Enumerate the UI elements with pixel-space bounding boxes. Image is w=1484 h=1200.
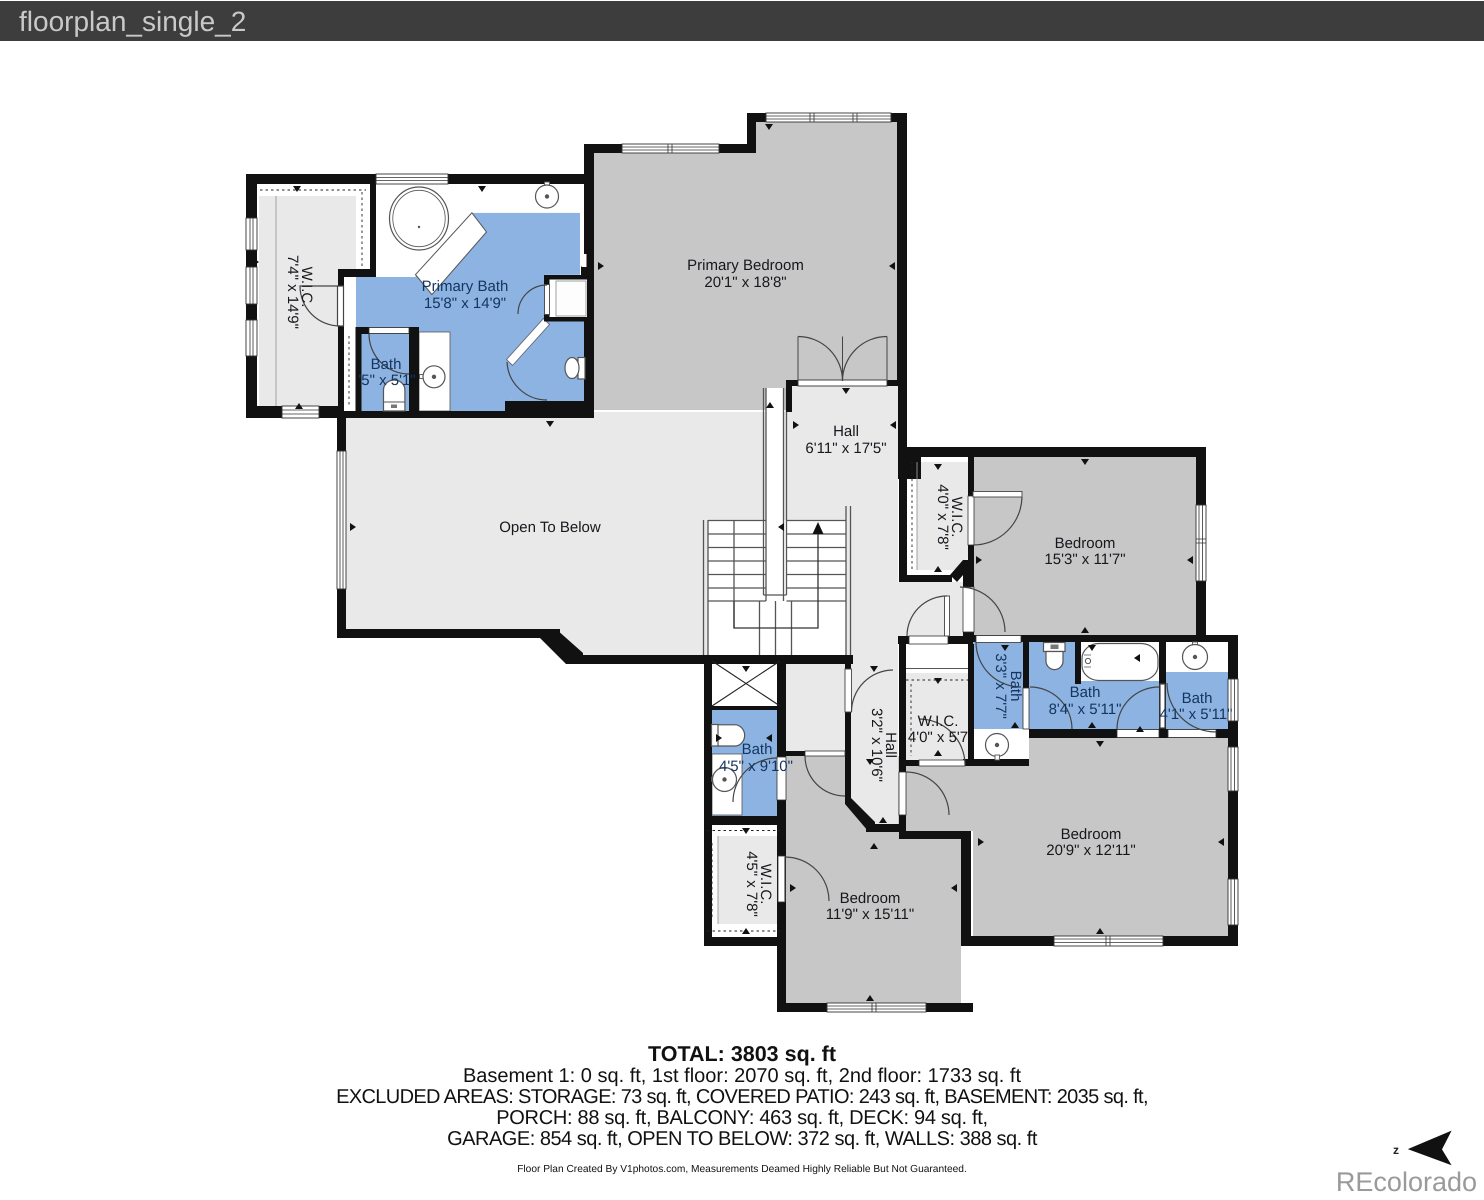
svg-text:REcolorado: REcolorado bbox=[1336, 1167, 1477, 1197]
svg-text:11'9" x 15'11": 11'9" x 15'11" bbox=[826, 906, 914, 923]
svg-text:6'11" x 17'5": 6'11" x 17'5" bbox=[805, 440, 886, 457]
svg-text:'5" x 5'1": '5" x 5'1" bbox=[358, 372, 415, 389]
svg-text:3'2" x 10'6": 3'2" x 10'6" bbox=[868, 708, 885, 782]
svg-text:Hall: Hall bbox=[833, 423, 859, 440]
svg-text:Floor Plan Created By V1photos: Floor Plan Created By V1photos.com, Meas… bbox=[517, 1164, 967, 1175]
svg-text:20'9" x 12'11": 20'9" x 12'11" bbox=[1046, 842, 1136, 859]
svg-text:Primary Bath: Primary Bath bbox=[422, 278, 509, 295]
svg-text:floorplan_single_2: floorplan_single_2 bbox=[19, 6, 246, 37]
svg-text:4'1" x 5'11": 4'1" x 5'11" bbox=[1160, 706, 1233, 723]
svg-text:Bedroom: Bedroom bbox=[840, 890, 901, 907]
svg-text:4'0" x 7'8": 4'0" x 7'8" bbox=[934, 484, 951, 550]
svg-text:4'5" x 9'10": 4'5" x 9'10" bbox=[719, 758, 793, 775]
svg-text:PORCH: 88 sq. ft, BALCONY: 463: PORCH: 88 sq. ft, BALCONY: 463 sq. ft, D… bbox=[496, 1107, 987, 1129]
svg-text:4'5" x 7'8": 4'5" x 7'8" bbox=[743, 851, 760, 917]
svg-text:3'3" x 7'7": 3'3" x 7'7" bbox=[992, 653, 1009, 719]
svg-text:7'4" x 14'9": 7'4" x 14'9" bbox=[284, 255, 301, 329]
svg-text:Basement 1: 0 sq. ft, 1st floo: Basement 1: 0 sq. ft, 1st floor: 2070 sq… bbox=[463, 1065, 1022, 1087]
svg-text:20'1" x 18'8": 20'1" x 18'8" bbox=[704, 274, 786, 291]
svg-text:z: z bbox=[1393, 1143, 1399, 1157]
svg-text:Open To Below: Open To Below bbox=[499, 519, 601, 536]
svg-text:TOTAL: 3803 sq. ft: TOTAL: 3803 sq. ft bbox=[648, 1042, 836, 1066]
svg-text:8'4" x 5'11": 8'4" x 5'11" bbox=[1049, 701, 1122, 718]
svg-text:GARAGE: 854 sq. ft, OPEN TO BE: GARAGE: 854 sq. ft, OPEN TO BELOW: 372 s… bbox=[447, 1128, 1038, 1150]
svg-text:Bath: Bath bbox=[1070, 684, 1101, 701]
svg-text:EXCLUDED AREAS: STORAGE: 73 sq: EXCLUDED AREAS: STORAGE: 73 sq. ft, COVE… bbox=[336, 1086, 1148, 1108]
svg-text:15'8" x 14'9": 15'8" x 14'9" bbox=[424, 295, 506, 312]
svg-text:Bedroom: Bedroom bbox=[1055, 535, 1116, 552]
svg-text:W.I.C.: W.I.C. bbox=[918, 713, 959, 730]
svg-text:Bedroom: Bedroom bbox=[1061, 826, 1122, 843]
svg-text:Bath: Bath bbox=[1182, 690, 1213, 707]
svg-text:4'0" x 5'7: 4'0" x 5'7 bbox=[908, 729, 968, 746]
svg-text:Primary Bedroom: Primary Bedroom bbox=[687, 257, 804, 274]
svg-text:15'3" x 11'7": 15'3" x 11'7" bbox=[1044, 551, 1125, 568]
svg-text:Bath: Bath bbox=[742, 741, 773, 758]
svg-text:Bath: Bath bbox=[371, 356, 402, 373]
